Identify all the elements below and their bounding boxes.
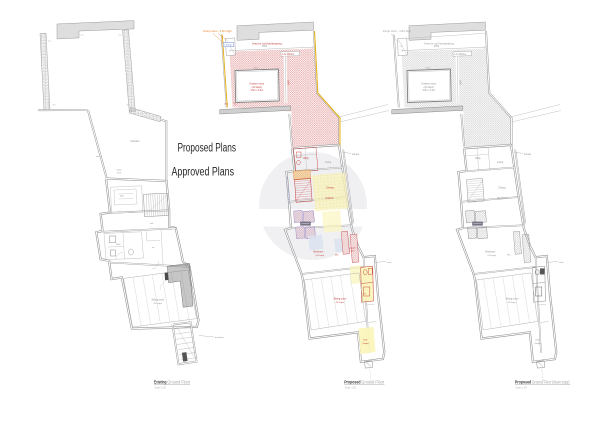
svg-text:Scale 1:50: Scale 1:50	[515, 386, 527, 389]
svg-text:Ground Floor: Ground Floor	[167, 379, 190, 384]
svg-text:Pump room - 1.8m high: Pump room - 1.8m high	[383, 29, 412, 33]
svg-text:Hall: Hall	[536, 340, 540, 342]
svg-text:Garden room: Garden room	[421, 83, 436, 86]
svg-text:Garden room: Garden room	[249, 83, 264, 86]
svg-text:Pump room - 2.5m high: Pump room - 2.5m high	[204, 29, 233, 33]
svg-text:Scale 1:50: Scale 1:50	[345, 386, 357, 389]
svg-text:L-G 100mm: L-G 100mm	[454, 54, 466, 56]
svg-text:Proposed: Proposed	[344, 379, 361, 384]
svg-text:Kitchen: Kitchen	[326, 197, 335, 200]
svg-text:wc: wc	[152, 247, 155, 249]
svg-text:Yard: Yard	[117, 171, 122, 174]
svg-text:Bath: Bath	[116, 243, 121, 246]
svg-text:45.3sqm: 45.3sqm	[508, 302, 517, 304]
svg-text:(6sqm): (6sqm)	[535, 343, 542, 345]
svg-text:WC: WC	[335, 255, 339, 257]
svg-text:Existing: Existing	[154, 379, 167, 384]
svg-text:(9.1sqm): (9.1sqm)	[316, 255, 325, 257]
svg-text:boundary: boundary	[215, 336, 225, 339]
svg-text:room: room	[350, 249, 355, 252]
svg-text:3.9m x 3.2m: 3.9m x 3.2m	[250, 90, 263, 92]
svg-text:4550: 4550	[426, 67, 432, 69]
svg-text:WC: WC	[507, 255, 511, 257]
svg-text:(9.1sqm): (9.1sqm)	[488, 255, 497, 257]
svg-text:Proposed Plans: Proposed Plans	[178, 142, 237, 154]
svg-text:Open: Open	[117, 170, 123, 172]
svg-text:Dining: Dining	[499, 187, 507, 190]
svg-text:Bedroom: Bedroom	[314, 251, 324, 254]
svg-text:Living: Living	[325, 161, 332, 164]
svg-text:4550: 4550	[254, 67, 260, 69]
svg-text:Scale 1:50: Scale 1:50	[155, 386, 167, 389]
svg-text:terrace: terrace	[352, 153, 360, 156]
svg-text:1 Pump: 1 Pump	[224, 45, 232, 47]
svg-text:Hall: Hall	[364, 340, 368, 342]
svg-text:Area for soft landscaping: Area for soft landscaping	[424, 41, 454, 45]
svg-text:3.9m x 3.2m: 3.9m x 3.2m	[422, 90, 435, 92]
svg-text:Approved Plans: Approved Plans	[172, 167, 235, 179]
svg-text:hall: hall	[150, 223, 154, 225]
svg-text:Dining: Dining	[327, 187, 335, 190]
svg-text:Ground Floor: Ground Floor	[361, 379, 384, 384]
svg-text:Living: Living	[497, 161, 504, 164]
svg-text:Bedroom: Bedroom	[486, 251, 496, 254]
svg-text:9550: 9550	[262, 46, 268, 48]
svg-text:Ground Floor (clean copy): Ground Floor (clean copy)	[532, 379, 570, 384]
svg-text:Utility: Utility	[303, 157, 309, 160]
svg-text:9550: 9550	[434, 46, 440, 48]
svg-text:45.3sqm: 45.3sqm	[336, 302, 345, 304]
svg-text:L-G 100mm: L-G 100mm	[282, 54, 294, 56]
svg-text:Sitting room: Sitting room	[152, 299, 165, 302]
svg-text:(12.4sqm): (12.4sqm)	[252, 87, 263, 89]
svg-text:(6sqm): (6sqm)	[363, 343, 370, 345]
svg-text:Utility: Utility	[475, 157, 481, 160]
svg-text:Sitting room: Sitting room	[334, 298, 347, 301]
svg-text:Bedroom: Bedroom	[498, 197, 508, 200]
svg-text:45.5sqm: 45.5sqm	[154, 303, 163, 305]
svg-text:Proposed: Proposed	[515, 379, 532, 384]
svg-text:Area for soft landscaping: Area for soft landscaping	[252, 41, 282, 45]
svg-text:(12.4sqm): (12.4sqm)	[424, 87, 435, 89]
svg-text:terrace: terrace	[524, 153, 532, 156]
svg-text:Sitting room: Sitting room	[506, 298, 519, 301]
svg-text:Garden: Garden	[131, 139, 140, 143]
svg-text:Sh: Sh	[363, 294, 365, 296]
